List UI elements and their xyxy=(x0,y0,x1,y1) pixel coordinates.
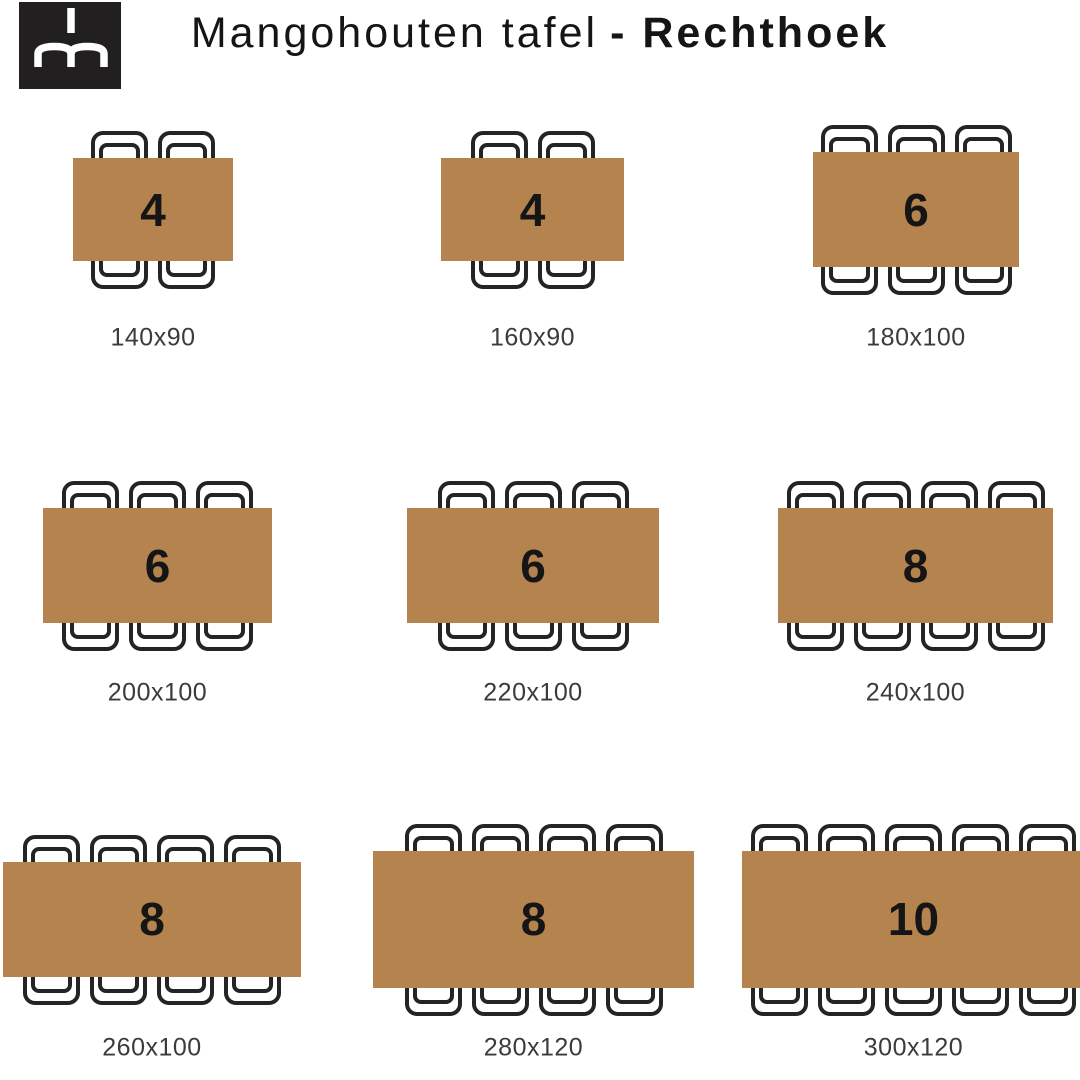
table-top-160x90: 4 xyxy=(441,158,624,261)
size-label: 240x100 xyxy=(866,681,965,706)
seat-count: 8 xyxy=(139,896,165,942)
size-label: 140x90 xyxy=(110,326,195,351)
size-label: 220x100 xyxy=(483,681,582,706)
size-label: 280x120 xyxy=(484,1036,583,1061)
seat-count: 8 xyxy=(903,543,929,589)
table-top-240x100: 8 xyxy=(778,508,1053,623)
table-top-180x100: 6 xyxy=(813,152,1019,267)
size-label: 160x90 xyxy=(490,326,575,351)
table-top-260x100: 8 xyxy=(3,862,301,977)
title-bold: - Rechthoek xyxy=(610,12,889,55)
seat-count: 6 xyxy=(520,543,546,589)
table-top-220x100: 6 xyxy=(407,508,659,623)
page-title: Mangohouten tafel - Rechthoek xyxy=(0,12,1080,55)
title-regular: Mangohouten tafel xyxy=(191,12,598,55)
size-label: 260x100 xyxy=(102,1036,201,1061)
table-top-200x100: 6 xyxy=(43,508,272,623)
size-label: 200x100 xyxy=(108,681,207,706)
size-label: 180x100 xyxy=(866,326,965,351)
size-label: 300x120 xyxy=(864,1036,963,1061)
infographic-canvas: Mangohouten tafel - Rechthoek 4140x90416… xyxy=(0,0,1080,1080)
table-top-140x90: 4 xyxy=(73,158,233,261)
table-top-280x120: 8 xyxy=(373,851,694,988)
seat-count: 4 xyxy=(520,187,546,233)
seat-count: 6 xyxy=(145,543,171,589)
table-top-300x120: 10 xyxy=(742,851,1080,988)
seat-count: 8 xyxy=(521,896,547,942)
seat-count: 4 xyxy=(140,187,166,233)
seat-count: 10 xyxy=(888,896,939,942)
seat-count: 6 xyxy=(903,187,929,233)
